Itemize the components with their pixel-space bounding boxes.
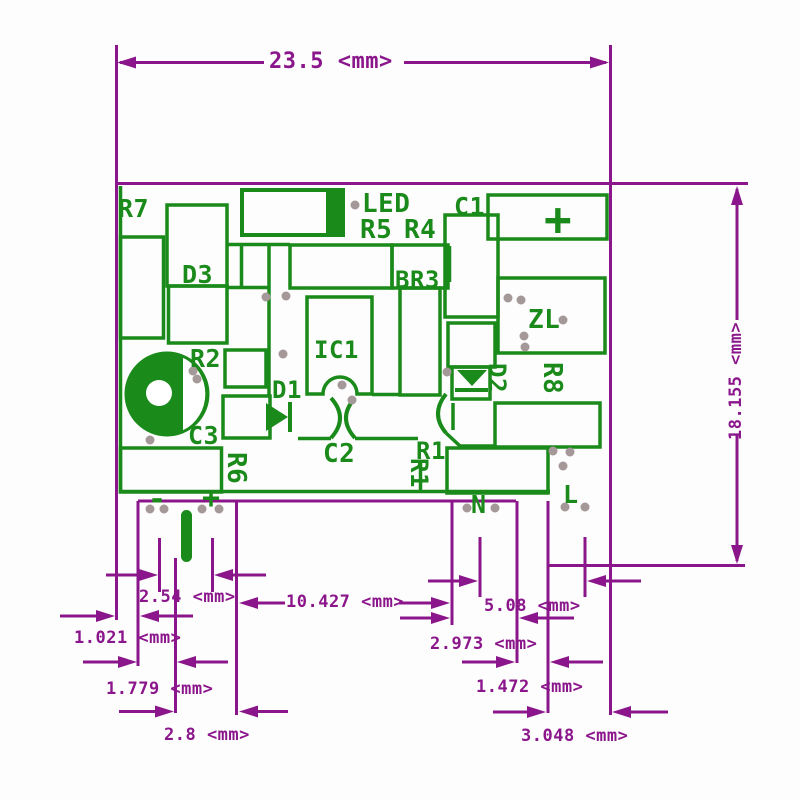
label-r5: R5 [360, 217, 392, 243]
dim-total-height: 18.155 <mm> [728, 322, 745, 440]
component-outline-c1 [445, 215, 498, 317]
pcb-dimension-drawing: R7 D3 R2 C3 D1 IC1 C2 R1 LED R5 R4 C1 BR… [0, 0, 800, 800]
component-outline-r8 [495, 403, 600, 447]
label-br3: BR3 [395, 268, 440, 292]
component-outline [121, 237, 164, 338]
label-c3: C3 [188, 423, 219, 448]
label-c2: C2 [323, 441, 355, 467]
dim-pin1-width: 1.021 <mm> [74, 630, 181, 647]
dim-center-span: 10.427 <mm> [286, 594, 404, 611]
label-r1-vertical: R1 [407, 458, 431, 488]
label-c1: C1 [454, 194, 485, 219]
label-ic1: IC1 [314, 338, 359, 362]
component-outline [448, 323, 495, 367]
dim-pin-right-width: 1.472 <mm> [476, 679, 583, 696]
dim-gap-left-inner: 1.779 <mm> [106, 681, 213, 698]
dim-total-width: 23.5 <mm> [269, 51, 393, 73]
component-outline-d3 [169, 286, 228, 343]
label-r2: R2 [190, 346, 221, 371]
label-r4: R4 [404, 217, 436, 243]
plus-polarity-pin: + [202, 484, 221, 514]
label-l: L [563, 482, 579, 507]
label-d3: D3 [182, 262, 213, 287]
component-outline-r5 [290, 245, 392, 288]
cap-hole [146, 380, 172, 406]
label-d1: D1 [272, 378, 302, 402]
dim-gap-right-edge: 3.048 <mm> [521, 728, 628, 745]
led-terminal-fill [326, 192, 341, 233]
label-n: N [471, 492, 487, 517]
label-zl: ZL [528, 307, 560, 333]
label-d2: D2 [485, 363, 509, 393]
minus-polarity-pin: - [148, 485, 167, 515]
component-outline-br3 [400, 288, 440, 395]
transistor-arc [438, 394, 446, 433]
label-r7: R7 [118, 196, 149, 221]
solder-pin-pad [181, 510, 192, 562]
plus-polarity-large: + [544, 196, 572, 242]
label-r6: R6 [223, 452, 249, 484]
component-outline-r2 [225, 350, 266, 387]
dim-pad-pitch-left: 2.54 <mm> [139, 589, 236, 606]
dim-gap-right-outer: 2.973 <mm> [430, 636, 537, 653]
transistor-pad [446, 433, 495, 446]
component-outline-d1 [223, 396, 270, 438]
d1-diode-triangle [266, 403, 288, 431]
label-r8: R8 [539, 362, 565, 394]
component-outline-n [447, 448, 548, 493]
dim-gap-left-center: 2.8 <mm> [164, 727, 250, 744]
label-led: LED [362, 191, 410, 217]
dim-pad-pitch-right: 5.08 <mm> [484, 598, 581, 615]
